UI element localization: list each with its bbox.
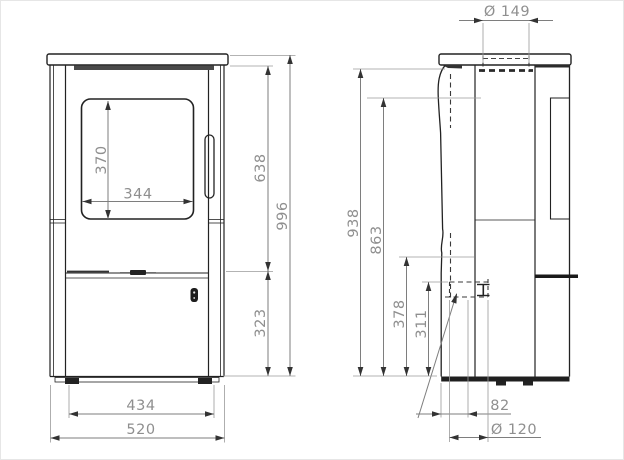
arrow-down [287, 367, 293, 376]
arrow-inward-left [474, 18, 483, 24]
dim-label-638: 638 [253, 153, 269, 182]
arrow-up [381, 98, 387, 107]
air-control-slider [130, 270, 146, 275]
dim-label-863: 863 [369, 225, 385, 254]
dim-label-311: 311 [414, 309, 430, 338]
arrow-down [404, 367, 410, 376]
side-front-foot [496, 382, 506, 386]
leader-arrowhead [451, 293, 457, 304]
dim-label-149: Ø 149 [484, 4, 530, 20]
dim-window-width: 344 [83, 187, 193, 205]
front-left-foot [65, 378, 79, 384]
arrow-down [426, 367, 432, 376]
side-curved-front-profile [438, 65, 445, 377]
dim-label-520: 520 [126, 422, 155, 438]
arrow-up [265, 271, 271, 280]
front-right-foot [198, 378, 212, 384]
side-view [418, 54, 578, 418]
arrow-right [205, 411, 214, 417]
arrow-up [287, 55, 293, 64]
rear-mounting-bracket [535, 275, 578, 279]
arrow-up [105, 101, 111, 110]
arrow-up [404, 257, 410, 266]
dim-label-996: 996 [275, 201, 291, 230]
arrow-inward-right [529, 18, 538, 24]
arrow-down [358, 367, 364, 376]
rear-shield-top-edge [535, 65, 570, 68]
dim-air-inlet-diameter: Ø 120 [450, 300, 542, 442]
side-top-plate [439, 54, 571, 65]
arrow-up [358, 69, 364, 78]
front-base-plinth [55, 378, 219, 383]
hidden-flue-collar [479, 56, 533, 73]
arrow-right [184, 199, 193, 205]
side-rear-foot [523, 382, 533, 386]
arrow-down [265, 262, 271, 271]
dim-label-82: 82 [490, 398, 509, 414]
dim-upper-section-height: 638 [226, 66, 273, 272]
lock-screw-bottom [193, 297, 195, 299]
arrow-left [83, 199, 92, 205]
arrow-right [479, 435, 488, 441]
dim-label-323: 323 [253, 308, 269, 337]
front-top-plate [47, 54, 228, 65]
arrow-up [426, 282, 432, 291]
front-view [47, 54, 228, 384]
technical-drawing-sheet: 370 344 638 323 996 [0, 0, 624, 460]
arrow-down [105, 210, 111, 219]
dim-label-378: 378 [392, 299, 408, 328]
arrow-down [265, 367, 271, 376]
arrow-left [51, 435, 60, 441]
dim-label-344: 344 [123, 187, 152, 203]
lock-screw-top [193, 291, 195, 293]
dim-label-370: 370 [94, 145, 110, 174]
arrow-inward-left [432, 411, 441, 417]
stove-dimension-drawing: 370 344 638 323 996 [1, 1, 624, 460]
front-air-slot-band [74, 66, 214, 71]
dim-label-120: Ø 120 [491, 422, 537, 438]
hidden-air-spigot [445, 279, 490, 300]
rear-shield-recess [551, 98, 570, 219]
dim-air-inlet-center-height: 311 [414, 282, 448, 376]
side-base-band [441, 377, 569, 382]
arrow-right [216, 435, 225, 441]
dim-label-434: 434 [126, 398, 155, 414]
lock-rosette [191, 288, 199, 302]
arrow-up [265, 66, 271, 75]
arrow-inward-right [468, 411, 477, 417]
dim-lower-section-height: 323 [253, 271, 271, 376]
dim-label-938: 938 [346, 208, 362, 237]
dim-air-inlet-top-height: 378 [392, 257, 474, 376]
door-handle [205, 135, 214, 198]
dim-foot-span: 434 [69, 385, 214, 418]
arrow-left [69, 411, 78, 417]
arrow-down [381, 367, 387, 376]
arrow-left [450, 435, 459, 441]
dim-side-overall-height: 938 [346, 69, 445, 376]
dim-air-inlet-offset: 82 [416, 300, 511, 418]
